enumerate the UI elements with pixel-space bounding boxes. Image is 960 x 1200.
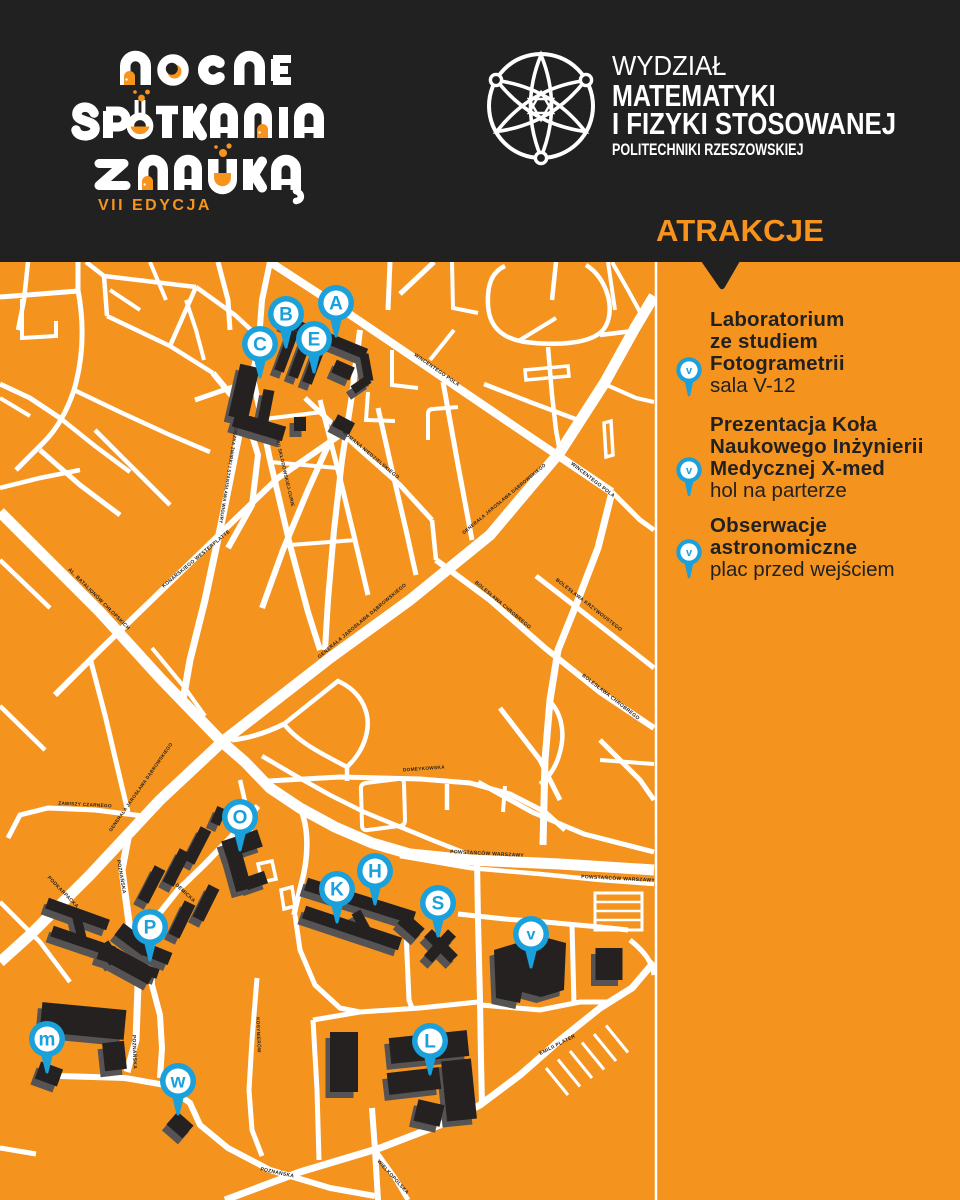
svg-text:L: L xyxy=(424,1032,436,1053)
svg-text:v: v xyxy=(686,547,693,559)
svg-text:C: C xyxy=(253,335,267,356)
svg-text:v: v xyxy=(527,927,536,944)
svg-text:A: A xyxy=(329,294,343,315)
svg-text:v: v xyxy=(686,365,693,377)
svg-text:E: E xyxy=(308,330,321,351)
svg-text:B: B xyxy=(279,305,293,326)
svg-text:w: w xyxy=(170,1072,186,1093)
svg-text:m: m xyxy=(39,1030,56,1051)
svg-text:v: v xyxy=(686,465,693,477)
svg-text:S: S xyxy=(432,894,445,915)
svg-text:O: O xyxy=(233,808,248,829)
svg-text:H: H xyxy=(368,862,382,883)
svg-text:K: K xyxy=(330,880,344,901)
svg-text:P: P xyxy=(144,918,157,939)
